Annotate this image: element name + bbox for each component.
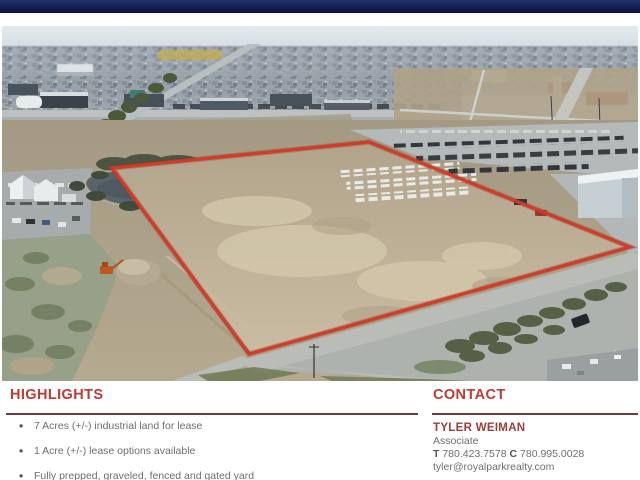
- phone-cell-number: 780.995.0028: [520, 448, 584, 460]
- highlight-item: Fully prepped, graveled, fenced and gate…: [14, 464, 418, 480]
- highlights-heading: HIGHLIGHTS: [10, 387, 103, 403]
- contact-heading: CONTACT: [433, 387, 506, 403]
- contact-phones: T 780.423.7578 C 780.995.0028: [433, 448, 638, 461]
- phone-cell-label: C: [510, 448, 518, 460]
- aerial-photo: [2, 26, 638, 381]
- contact-name: TYLER WEIMAN: [433, 421, 638, 435]
- phone-office-label: T: [433, 448, 439, 460]
- contact-title: Associate: [433, 435, 638, 448]
- header-bar: [0, 0, 640, 13]
- flyer-page: HIGHLIGHTS CONTACT 7 Acres (+/-) industr…: [0, 0, 640, 480]
- contact-email: tyler@royalparkrealty.com: [433, 461, 638, 474]
- highlights-list: 7 Acres (+/-) industrial land for lease …: [14, 414, 418, 480]
- warehouse-building: [578, 169, 638, 218]
- highlight-item: 7 Acres (+/-) industrial land for lease: [14, 414, 418, 439]
- contact-rule: [432, 413, 638, 415]
- contact-block: TYLER WEIMAN Associate T 780.423.7578 C …: [433, 421, 638, 473]
- phone-office-number: 780.423.7578: [442, 448, 506, 460]
- highlight-item: 1 Acre (+/-) lease options available: [14, 439, 418, 464]
